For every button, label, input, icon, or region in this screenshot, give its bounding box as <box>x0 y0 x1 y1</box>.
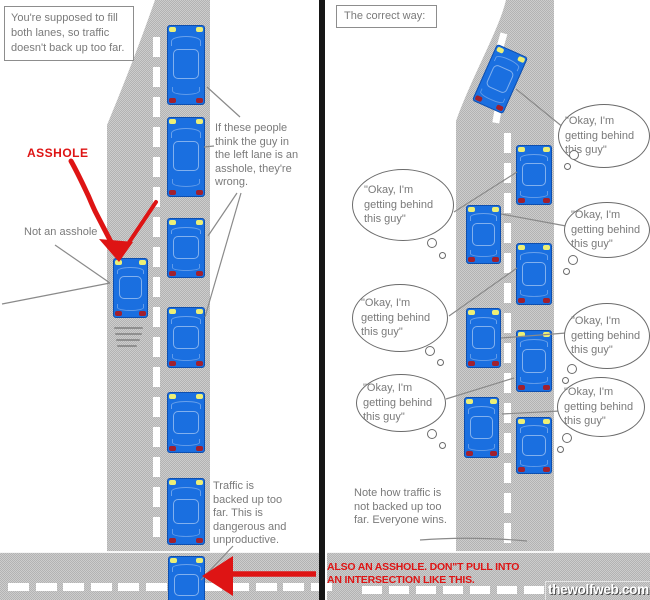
car-roof <box>173 411 198 434</box>
taillight-icon <box>496 104 504 111</box>
taillight-icon <box>543 385 550 390</box>
car-windshield <box>172 564 201 572</box>
car <box>167 307 205 368</box>
headlight-icon <box>196 119 203 124</box>
car-windshield <box>468 406 495 414</box>
taillight-icon <box>468 361 475 366</box>
lane-dash <box>504 403 511 423</box>
car <box>466 205 501 264</box>
lane-dash <box>504 343 511 363</box>
headlight-icon <box>169 480 176 485</box>
car <box>167 392 205 453</box>
taillight-icon <box>518 467 525 472</box>
pointer-line <box>2 283 110 304</box>
headlight-icon <box>196 480 203 485</box>
skid-mark <box>116 339 140 341</box>
thought-bubble: "Okay, I'm getting behind this guy" <box>352 169 454 241</box>
headlight-icon <box>543 332 550 337</box>
taillight-icon <box>196 190 203 195</box>
car-roof <box>472 223 495 246</box>
lane-dash <box>153 397 160 417</box>
asshole-label: ASSHOLE <box>27 146 89 160</box>
lane-dash <box>153 247 160 267</box>
car-rear-window <box>172 264 201 271</box>
car <box>167 117 205 197</box>
headlight-icon <box>517 56 525 63</box>
left-panel-caption-box: You're supposed to fill both lanes, so t… <box>4 6 134 61</box>
left-panel-caption: You're supposed to fill both lanes, so t… <box>11 12 124 54</box>
car <box>464 397 499 458</box>
car-rear-window <box>470 354 496 361</box>
lane-dash <box>504 283 511 303</box>
thought-bubble: "Okay, I'm getting behind this guy" <box>564 303 650 369</box>
bubble-tail-dot <box>568 255 578 265</box>
lane-dash <box>153 337 160 357</box>
headlight-icon <box>518 419 525 424</box>
car-rear-window <box>172 354 201 361</box>
car-rear-window <box>520 191 547 198</box>
watermark: thewolfweb.com <box>545 581 650 600</box>
bubble-tail-dot <box>569 150 579 160</box>
lane-dash <box>470 586 490 594</box>
bubble-tail-dot <box>439 252 446 259</box>
car-windshield <box>470 213 497 221</box>
lane-dash <box>497 586 517 594</box>
taillight-icon <box>196 446 203 451</box>
car-windshield <box>117 267 144 275</box>
headlight-icon <box>468 310 475 315</box>
car-roof <box>173 49 198 79</box>
lane-dash <box>153 67 160 87</box>
taillight-icon <box>169 446 176 451</box>
lane-dash <box>118 583 139 591</box>
thought-bubble: "Okay, I'm getting behind this guy" <box>352 284 448 352</box>
lane-dash <box>256 583 277 591</box>
thought-bubble: "Okay, I'm getting behind this guy" <box>557 377 645 437</box>
taillight-icon <box>115 311 122 316</box>
car <box>516 145 552 205</box>
bubble-tail-dot <box>562 433 572 443</box>
car-roof <box>119 276 142 299</box>
lane-dash <box>153 367 160 387</box>
lane-dash <box>504 253 511 273</box>
traffic-backed-up-note: Traffic is backed up too far. This is da… <box>213 480 291 548</box>
lane-dash <box>504 133 511 153</box>
intersection-edge-right <box>327 551 650 553</box>
thought-bubble-text: "Okay, I'm getting behind this guy" <box>558 385 644 429</box>
car-roof <box>173 499 198 524</box>
car <box>466 308 501 368</box>
thought-bubble-text: "Okay, I'm getting behind this guy" <box>358 183 448 227</box>
car-roof <box>174 574 199 596</box>
car-roof <box>173 141 198 171</box>
taillight-icon <box>196 98 203 103</box>
taillight-icon <box>492 361 499 366</box>
headlight-icon <box>518 147 525 152</box>
lane-dash <box>283 583 304 591</box>
thought-bubble-text: "Okay, I'm getting behind this guy" <box>357 381 445 425</box>
lane-dash <box>362 586 382 594</box>
lane-dash <box>153 217 160 237</box>
taillight-icon <box>139 311 146 316</box>
taillight-icon <box>169 361 176 366</box>
car <box>113 258 148 318</box>
car-windshield <box>171 316 201 324</box>
lane-dash <box>153 127 160 147</box>
headlight-icon <box>468 207 475 212</box>
panel-divider <box>319 0 325 600</box>
car-windshield <box>470 317 497 325</box>
headlight-icon <box>115 260 122 265</box>
taillight-icon <box>543 298 550 303</box>
lane-dash <box>63 583 84 591</box>
pointer-line <box>208 193 237 236</box>
car-windshield <box>171 401 201 409</box>
headlight-icon <box>518 332 525 337</box>
car <box>516 243 552 305</box>
headlight-icon <box>492 310 499 315</box>
headlight-icon <box>169 119 176 124</box>
headlight-icon <box>543 245 550 250</box>
car <box>167 218 205 278</box>
bubble-tail-dot <box>427 238 437 248</box>
car-rear-window <box>520 377 547 384</box>
car-roof <box>470 416 493 439</box>
headlight-icon <box>196 27 203 32</box>
taillight-icon <box>475 95 483 102</box>
car <box>167 478 205 545</box>
lane-dash <box>504 193 511 213</box>
headlight-icon <box>169 220 176 225</box>
headlight-icon <box>196 220 203 225</box>
taillight-icon <box>492 257 499 262</box>
taillight-icon <box>196 538 203 543</box>
lane-dash <box>504 493 511 513</box>
taillight-icon <box>466 451 473 456</box>
lane-dash <box>153 517 160 537</box>
skid-mark <box>117 345 137 347</box>
lane-dash <box>153 487 160 507</box>
pointer-line <box>207 87 240 117</box>
thought-bubble-text: "Okay, I'm getting behind this guy" <box>355 296 445 340</box>
lane-dash <box>146 583 167 591</box>
taillight-icon <box>518 198 525 203</box>
car-windshield <box>520 252 548 260</box>
car-windshield <box>171 487 201 496</box>
bubble-tail-dot <box>564 163 571 170</box>
lane-dash <box>153 37 160 57</box>
right-panel-caption-box: The correct way: <box>336 5 437 28</box>
headlight-icon <box>139 260 146 265</box>
lane-dash <box>91 583 112 591</box>
headlight-icon <box>518 245 525 250</box>
taillight-icon <box>518 385 525 390</box>
lane-dash <box>153 277 160 297</box>
taillight-icon <box>490 451 497 456</box>
lane-dash <box>504 313 511 333</box>
skid-mark <box>115 333 142 335</box>
bubble-tail-dot <box>557 446 564 453</box>
lane-dash <box>504 163 511 183</box>
car-rear-window <box>172 87 201 96</box>
headlight-icon <box>169 27 176 32</box>
car-roof <box>472 326 495 349</box>
lane-dash <box>153 187 160 207</box>
lane-dash <box>153 157 160 177</box>
lane-dash <box>504 523 511 543</box>
taillight-icon <box>169 271 176 276</box>
bubble-tail-dot <box>427 429 437 439</box>
lane-dash <box>504 463 511 483</box>
lane-dash <box>389 586 409 594</box>
taillight-icon <box>468 257 475 262</box>
car-rear-window <box>172 529 201 537</box>
car-roof <box>173 326 198 349</box>
car-windshield <box>171 128 201 138</box>
left-panel-cross-road <box>0 552 321 600</box>
headlight-icon <box>490 399 497 404</box>
taillight-icon <box>169 190 176 195</box>
lane-dash <box>443 586 463 594</box>
lane-dash <box>8 583 29 591</box>
headlight-icon <box>196 309 203 314</box>
taillight-icon <box>169 538 176 543</box>
car <box>168 556 205 600</box>
thought-bubble: "Okay, I'm getting behind this guy" <box>564 202 650 258</box>
lane-dash <box>416 586 436 594</box>
lane-dash <box>504 373 511 393</box>
headlight-icon <box>543 147 550 152</box>
taillight-icon <box>196 361 203 366</box>
bubble-tail-dot <box>563 268 570 275</box>
car-windshield <box>520 425 548 433</box>
headlight-icon <box>492 207 499 212</box>
car-roof <box>522 163 546 186</box>
car-rear-window <box>468 444 494 451</box>
car <box>167 25 205 105</box>
car-rear-window <box>520 290 547 297</box>
traffic-merge-comic: "Okay, I'm getting behind this guy""Okay… <box>0 0 650 600</box>
pointer-line <box>205 193 241 317</box>
taillight-icon <box>543 198 550 203</box>
thought-bubble: "Okay, I'm getting behind this guy" <box>356 374 446 432</box>
lane-dash <box>153 307 160 327</box>
headlight-icon <box>170 558 177 563</box>
headlight-icon <box>169 394 176 399</box>
car-roof <box>173 236 198 259</box>
car-rear-window <box>172 179 201 188</box>
car-windshield <box>520 154 548 162</box>
intersection-asshole-note: ALSO AN ASSHOLE. DON"T PULL INTO AN INTE… <box>327 561 527 587</box>
headlight-icon <box>466 399 473 404</box>
bubble-tail-dot <box>567 364 577 374</box>
lane-dash <box>228 583 249 591</box>
thought-bubble-text: "Okay, I'm getting behind this guy" <box>565 314 649 358</box>
car-rear-window <box>470 250 496 257</box>
taillight-icon <box>543 467 550 472</box>
lane-dash <box>504 223 511 243</box>
pointer-line <box>55 245 110 283</box>
car-rear-window <box>117 304 143 311</box>
no-backup-note: Note how traffic is not backed up too fa… <box>354 487 449 528</box>
right-panel-caption: The correct way: <box>344 10 425 22</box>
taillight-icon <box>169 98 176 103</box>
car <box>516 417 552 474</box>
headlight-icon <box>169 309 176 314</box>
car-rear-window <box>520 460 547 467</box>
lane-dash <box>36 583 57 591</box>
car-windshield <box>520 339 548 347</box>
car-roof <box>522 262 546 286</box>
headlight-icon <box>496 46 504 53</box>
not-asshole-label: Not an asshole <box>24 226 97 240</box>
headlight-icon <box>196 394 203 399</box>
lane-dash <box>153 457 160 477</box>
headlight-icon <box>196 558 203 563</box>
bubble-tail-dot <box>562 377 569 384</box>
intersection-edge-left <box>0 551 321 553</box>
taillight-icon <box>518 298 525 303</box>
lane-dash <box>504 433 511 453</box>
lane-dash <box>153 97 160 117</box>
car-roof <box>522 435 546 457</box>
lane-dash <box>524 586 544 594</box>
headlight-icon <box>543 419 550 424</box>
car-windshield <box>171 36 201 46</box>
car-windshield <box>171 227 201 235</box>
lane-dash <box>153 427 160 447</box>
bubble-tail-dot <box>437 359 444 366</box>
bubble-tail-dot <box>439 442 446 449</box>
wrong-note: If these people think the guy in the lef… <box>215 122 305 190</box>
skid-mark <box>114 327 143 329</box>
taillight-icon <box>196 271 203 276</box>
car-roof <box>522 349 546 373</box>
thought-bubble-text: "Okay, I'm getting behind this guy" <box>565 208 649 252</box>
car <box>516 330 552 392</box>
car-rear-window <box>172 439 201 446</box>
bubble-tail-dot <box>425 346 435 356</box>
